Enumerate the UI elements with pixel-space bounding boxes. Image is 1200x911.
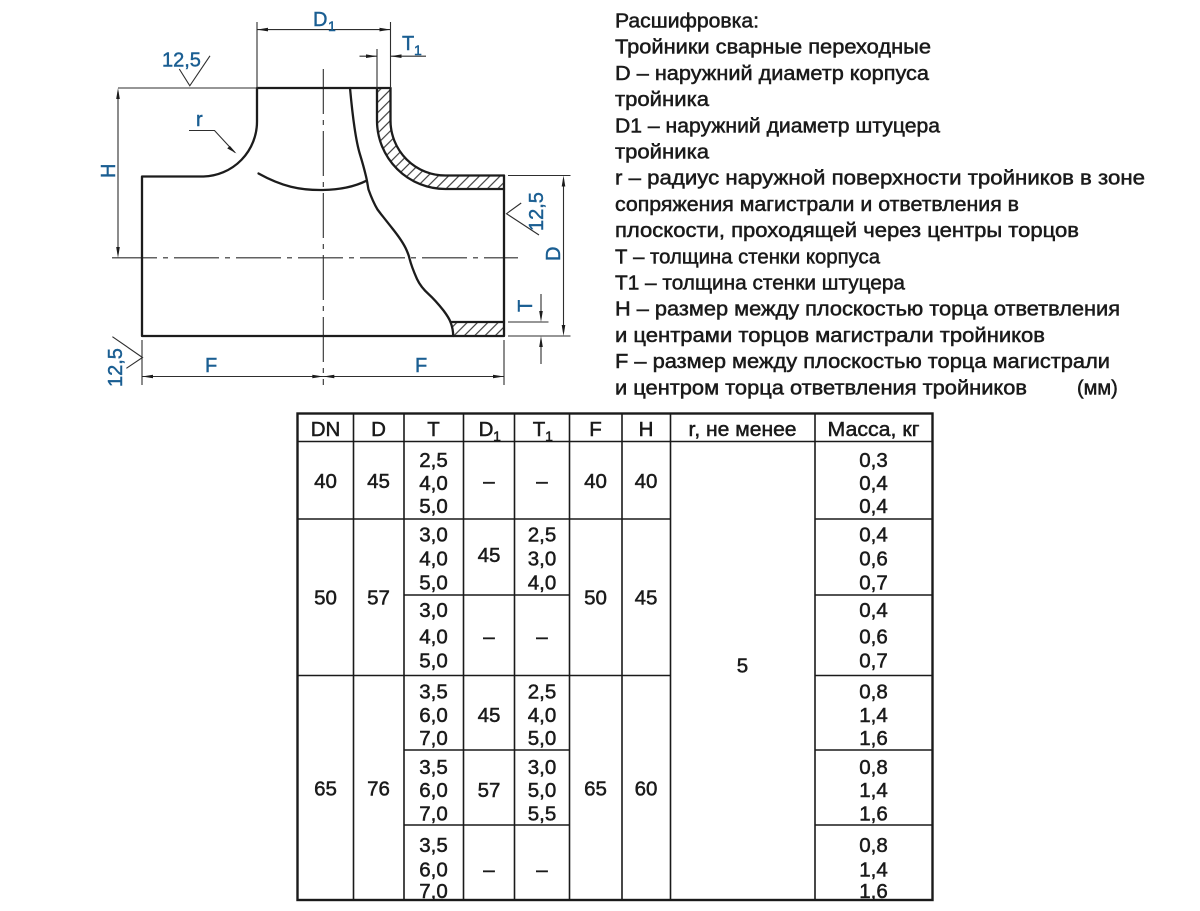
svg-text:3,0: 3,0 — [419, 599, 448, 622]
svg-text:0,3: 0,3 — [859, 449, 888, 472]
svg-text:50: 50 — [314, 587, 337, 610]
svg-text:D – наружний диаметр корпуса: D – наружний диаметр корпуса — [615, 63, 930, 85]
svg-text:6,0: 6,0 — [419, 704, 448, 727]
svg-text:45: 45 — [478, 544, 501, 567]
svg-text:3,5: 3,5 — [419, 834, 448, 857]
svg-text:3,0: 3,0 — [419, 524, 448, 547]
svg-text:3,0: 3,0 — [528, 756, 557, 779]
svg-text:0,8: 0,8 — [859, 834, 888, 857]
svg-text:5,0: 5,0 — [419, 572, 448, 595]
svg-text:1,4: 1,4 — [859, 704, 888, 727]
svg-text:D: D — [313, 9, 327, 31]
svg-text:–: – — [483, 859, 495, 882]
svg-text:4,0: 4,0 — [419, 472, 448, 495]
svg-text:D: D — [371, 418, 386, 441]
svg-text:T: T — [533, 418, 546, 441]
svg-text:H: H — [98, 164, 120, 178]
svg-text:5,0: 5,0 — [528, 779, 557, 802]
svg-text:T: T — [402, 33, 414, 55]
svg-text:1,4: 1,4 — [859, 779, 888, 802]
svg-text:F: F — [589, 418, 602, 441]
svg-text:5,0: 5,0 — [419, 495, 448, 518]
svg-text:2,5: 2,5 — [419, 449, 448, 472]
svg-text:45: 45 — [367, 470, 390, 493]
svg-text:0,4: 0,4 — [859, 599, 888, 622]
svg-text:–: – — [536, 626, 548, 649]
svg-text:–: – — [483, 626, 495, 649]
svg-text:–: – — [536, 470, 548, 493]
svg-text:D: D — [479, 418, 494, 441]
svg-text:6,0: 6,0 — [419, 859, 448, 882]
svg-text:H: H — [639, 418, 654, 441]
svg-text:1: 1 — [414, 42, 422, 58]
svg-text:7,0: 7,0 — [419, 803, 448, 826]
svg-text:12,5: 12,5 — [162, 50, 201, 72]
svg-text:2,5: 2,5 — [528, 524, 557, 547]
svg-text:Расшифровка:: Расшифровка: — [615, 11, 759, 33]
svg-text:r: r — [196, 109, 203, 131]
svg-text:1,6: 1,6 — [859, 803, 888, 826]
svg-text:4,0: 4,0 — [419, 626, 448, 649]
svg-text:3,0: 3,0 — [528, 548, 557, 571]
svg-text:DN: DN — [311, 418, 341, 441]
svg-text:4,0: 4,0 — [528, 572, 557, 595]
svg-text:–: – — [536, 859, 548, 882]
svg-text:0,7: 0,7 — [859, 572, 888, 595]
svg-text:3,5: 3,5 — [419, 756, 448, 779]
svg-text:Масса, кг: Масса, кг — [828, 418, 920, 441]
svg-text:5,0: 5,0 — [528, 727, 557, 750]
svg-text:0,6: 0,6 — [859, 548, 888, 571]
svg-text:Т1 – толщина стенки штуцера: Т1 – толщина стенки штуцера — [615, 273, 906, 295]
svg-text:76: 76 — [367, 778, 390, 801]
svg-text:0,7: 0,7 — [859, 650, 888, 673]
svg-text:1: 1 — [493, 428, 501, 444]
svg-text:45: 45 — [635, 587, 658, 610]
svg-text:(мм): (мм) — [1077, 377, 1118, 399]
svg-text:7,0: 7,0 — [419, 880, 448, 903]
svg-text:40: 40 — [584, 470, 607, 493]
svg-text:0,4: 0,4 — [859, 495, 888, 518]
svg-text:1: 1 — [545, 428, 553, 444]
svg-text:D1 – наружний диаметр штуцера: D1 – наружний диаметр штуцера — [615, 115, 941, 137]
svg-text:T: T — [427, 418, 440, 441]
svg-text:1,6: 1,6 — [859, 880, 888, 903]
svg-text:и центром торца ответвления тр: и центром торца ответвления тройников — [615, 377, 1027, 399]
svg-text:тройника: тройника — [615, 142, 710, 164]
svg-text:плоскости, проходящей через це: плоскости, проходящей через центры торцо… — [615, 220, 1079, 242]
svg-text:60: 60 — [635, 778, 658, 801]
svg-text:T: T — [515, 300, 537, 312]
svg-text:Тройники сварные переходные: Тройники сварные переходные — [615, 37, 931, 59]
svg-text:0,4: 0,4 — [859, 472, 888, 495]
svg-text:F: F — [415, 355, 427, 377]
svg-text:сопряжения магистрали и ответв: сопряжения магистрали и ответвления в — [615, 194, 1019, 216]
svg-text:50: 50 — [584, 587, 607, 610]
svg-text:6,0: 6,0 — [419, 779, 448, 802]
svg-text:1,6: 1,6 — [859, 727, 888, 750]
svg-text:4,0: 4,0 — [419, 548, 448, 571]
svg-text:0,6: 0,6 — [859, 626, 888, 649]
svg-text:7,0: 7,0 — [419, 727, 448, 750]
svg-text:и центрами торцов магистрали т: и центрами торцов магистрали тройников — [615, 325, 1045, 347]
svg-text:F – размер между плоскостью то: F – размер между плоскостью торца магист… — [615, 351, 1110, 373]
svg-text:3,5: 3,5 — [419, 681, 448, 704]
svg-text:F: F — [205, 355, 217, 377]
svg-text:0,4: 0,4 — [859, 524, 888, 547]
svg-text:Т – толщина стенки корпуса: Т – толщина стенки корпуса — [615, 246, 881, 268]
svg-text:57: 57 — [478, 779, 501, 802]
svg-text:12,5: 12,5 — [105, 348, 127, 387]
svg-text:5,5: 5,5 — [528, 803, 557, 826]
svg-text:45: 45 — [478, 704, 501, 727]
svg-text:2,5: 2,5 — [528, 681, 557, 704]
svg-text:4,0: 4,0 — [528, 704, 557, 727]
svg-text:0,8: 0,8 — [859, 756, 888, 779]
svg-text:12,5: 12,5 — [526, 192, 548, 231]
svg-text:5,0: 5,0 — [419, 650, 448, 673]
svg-text:5: 5 — [737, 655, 748, 678]
svg-text:40: 40 — [635, 470, 658, 493]
svg-text:65: 65 — [584, 778, 607, 801]
svg-text:0,8: 0,8 — [859, 681, 888, 704]
svg-text:40: 40 — [314, 470, 337, 493]
svg-text:1,4: 1,4 — [859, 859, 888, 882]
svg-text:65: 65 — [314, 778, 337, 801]
svg-text:57: 57 — [367, 587, 390, 610]
svg-text:–: – — [483, 470, 495, 493]
svg-text:D: D — [543, 247, 565, 261]
svg-text:тройника: тройника — [615, 89, 710, 111]
svg-text:Н – размер между плоскостью то: Н – размер между плоскостью торца ответв… — [615, 299, 1120, 321]
svg-text:r – радиус наружной поверхност: r – радиус наружной поверхности тройнико… — [615, 168, 1145, 190]
svg-text:1: 1 — [328, 18, 336, 34]
svg-text:r, не менее: r, не менее — [689, 418, 797, 441]
